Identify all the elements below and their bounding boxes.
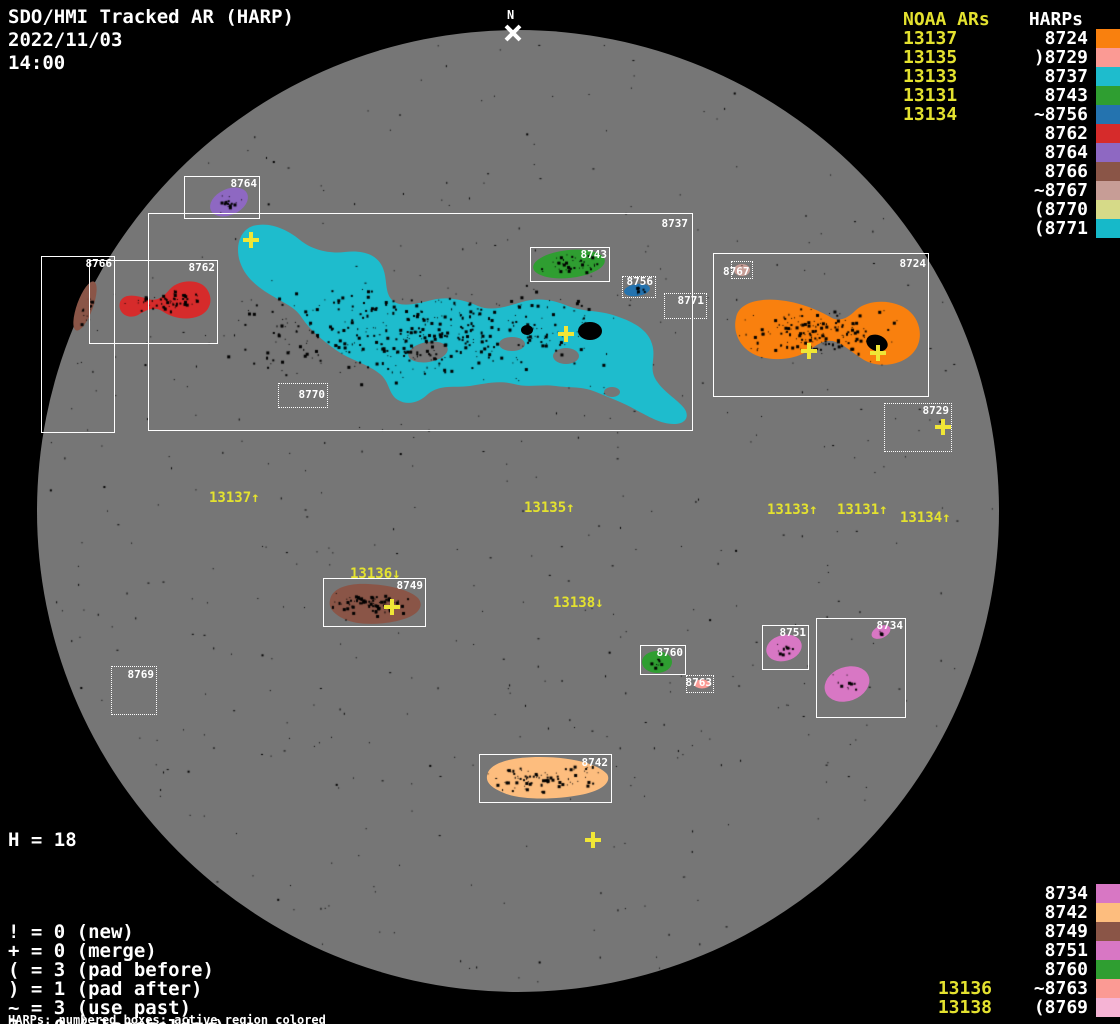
harp-box-8767: 8767 [731, 261, 753, 279]
harp-legend-row: 8764 [968, 143, 1120, 162]
harp-number: ~8767 [968, 181, 1088, 200]
harp-legend-row: )8729 [968, 48, 1120, 67]
harp-box-label: 8771 [678, 295, 705, 307]
harp-box-label: 8751 [780, 627, 807, 639]
harp-color-swatch [1096, 922, 1120, 941]
harp-legend-header: HARPs [968, 10, 1120, 29]
harp-number: 8737 [968, 67, 1088, 86]
harp-legend-list: 8724 )8729 8737 8743 [968, 29, 1120, 238]
harp-legend-row: 8760 [968, 960, 1120, 979]
harp-legend-row: (8771 [968, 219, 1120, 238]
harp-legend-row: 8737 [968, 67, 1120, 86]
harp-box-8742: 8742 [479, 754, 612, 803]
harp-number: 8742 [968, 903, 1088, 922]
harp-color-swatch [1096, 67, 1120, 86]
harp-box-label: 8770 [299, 389, 326, 401]
harp-box-label: 8760 [657, 647, 684, 659]
harp-legend-row: ~8756 [968, 105, 1120, 124]
harp-color-swatch [1096, 941, 1120, 960]
harp-color-swatch [1096, 86, 1120, 105]
harp-number: 8760 [968, 960, 1088, 979]
harp-box-label: 8756 [627, 276, 654, 288]
harp-box-8771: 8771 [664, 293, 707, 319]
harp-color-swatch [1096, 219, 1120, 238]
harp-color-swatch [1096, 162, 1120, 181]
harp-box-8760: 8760 [640, 645, 686, 675]
noaa-disk-label-13131: 13131↑ [837, 503, 888, 518]
harp-number: ~8756 [968, 105, 1088, 124]
harp-legend-row: 8724 [968, 29, 1120, 48]
harp-legend-row: 8743 [968, 86, 1120, 105]
noaa-disk-label-13136: 13136↓ [350, 567, 401, 582]
harp-box-8729: 8729 [884, 403, 952, 452]
harp-box-8743: 8743 [530, 247, 610, 282]
plot-title: SDO/HMI Tracked AR (HARP) [8, 6, 294, 29]
harp-color-swatch [1096, 998, 1120, 1017]
title-block: SDO/HMI Tracked AR (HARP) 2022/11/03 14:… [8, 6, 294, 75]
harp-legend-row: 8749 [968, 922, 1120, 941]
harp-box-8751: 8751 [762, 625, 809, 670]
harp-box-label: 8737 [662, 218, 689, 230]
noaa-disk-label-13133: 13133↑ [767, 503, 818, 518]
harp-legend-row: (8770 [968, 200, 1120, 219]
harp-number: 8762 [968, 124, 1088, 143]
harp-legend-row: 8751 [968, 941, 1120, 960]
harp-box-label: 8762 [189, 262, 216, 274]
harp-box-8756: 8756 [622, 276, 656, 298]
harp-number: 8734 [968, 884, 1088, 903]
harp-number: 8766 [968, 162, 1088, 181]
harp-color-swatch [1096, 884, 1120, 903]
harp-number: 8764 [968, 143, 1088, 162]
harp-box-label: 8729 [923, 405, 950, 417]
harp-number: 8724 [968, 29, 1088, 48]
noaa-disk-label-13138: 13138↓ [553, 596, 604, 611]
harp-legend-row: 8762 [968, 124, 1120, 143]
harp-color-swatch [1096, 903, 1120, 922]
footer-caption: HARPs: numbered boxes; active region col… [8, 990, 427, 1024]
harp-color-swatch [1096, 105, 1120, 124]
harp-color-swatch [1096, 29, 1120, 48]
noaa-disk-label-13134: 13134↑ [900, 511, 951, 526]
harp-number: 8751 [968, 941, 1088, 960]
harp-box-label: 8769 [128, 669, 155, 681]
harp-box-8763: 8763 [686, 675, 714, 693]
harp-legend-row: 8742 [968, 903, 1120, 922]
plot-date: 2022/11/03 [8, 29, 294, 52]
harp-box-label: 8743 [581, 249, 608, 261]
harp-count: H = 18 [8, 829, 77, 851]
harp-number: (8770 [968, 200, 1088, 219]
harp-box-label: 8742 [582, 757, 609, 769]
noaa-legend-bottom: 1313613138 [900, 979, 992, 1017]
footer-line-1: HARPs: numbered boxes; active region col… [8, 1014, 427, 1024]
noaa-disk-label-13137: 13137↑ [209, 491, 260, 506]
harp-legend-row: ~8767 [968, 181, 1120, 200]
plot-time: 14:00 [8, 52, 294, 75]
noaa-number: 13136 [900, 979, 992, 998]
north-label: N [507, 8, 514, 22]
harp-tracking-plot: SDO/HMI Tracked AR (HARP) 2022/11/03 14:… [0, 0, 1120, 1024]
harp-legend-top: HARPs 8724 )8729 8737 8743 [968, 10, 1120, 238]
harp-color-swatch [1096, 143, 1120, 162]
harp-box-8737: 8737 [148, 213, 693, 431]
harp-box-8769: 8769 [111, 666, 157, 715]
harp-box-8762: 8762 [89, 260, 218, 344]
harp-number: 8743 [968, 86, 1088, 105]
harp-number: 8749 [968, 922, 1088, 941]
harp-box-8749: 8749 [323, 578, 426, 627]
harp-box-label: 8724 [900, 258, 927, 270]
harp-color-swatch [1096, 48, 1120, 67]
harp-number: (8771 [968, 219, 1088, 238]
harp-color-swatch [1096, 181, 1120, 200]
harp-color-swatch [1096, 979, 1120, 998]
noaa-number: 13138 [900, 998, 992, 1017]
harp-box-label: 8764 [231, 178, 258, 190]
harp-box-label: 8763 [686, 677, 713, 689]
noaa-disk-label-13135: 13135↑ [524, 501, 575, 516]
harp-number: )8729 [968, 48, 1088, 67]
harp-legend-row: 8734 [968, 884, 1120, 903]
harp-box-8734: 8734 [816, 618, 906, 718]
harp-box-8770: 8770 [278, 383, 328, 408]
noaa-legend-list: 1313613138 [900, 979, 992, 1017]
harp-color-swatch [1096, 124, 1120, 143]
harp-box-label: 8767 [723, 266, 750, 278]
harp-legend-row: 8766 [968, 162, 1120, 181]
harp-color-swatch [1096, 960, 1120, 979]
harp-box-label: 8734 [877, 620, 904, 632]
harp-color-swatch [1096, 200, 1120, 219]
